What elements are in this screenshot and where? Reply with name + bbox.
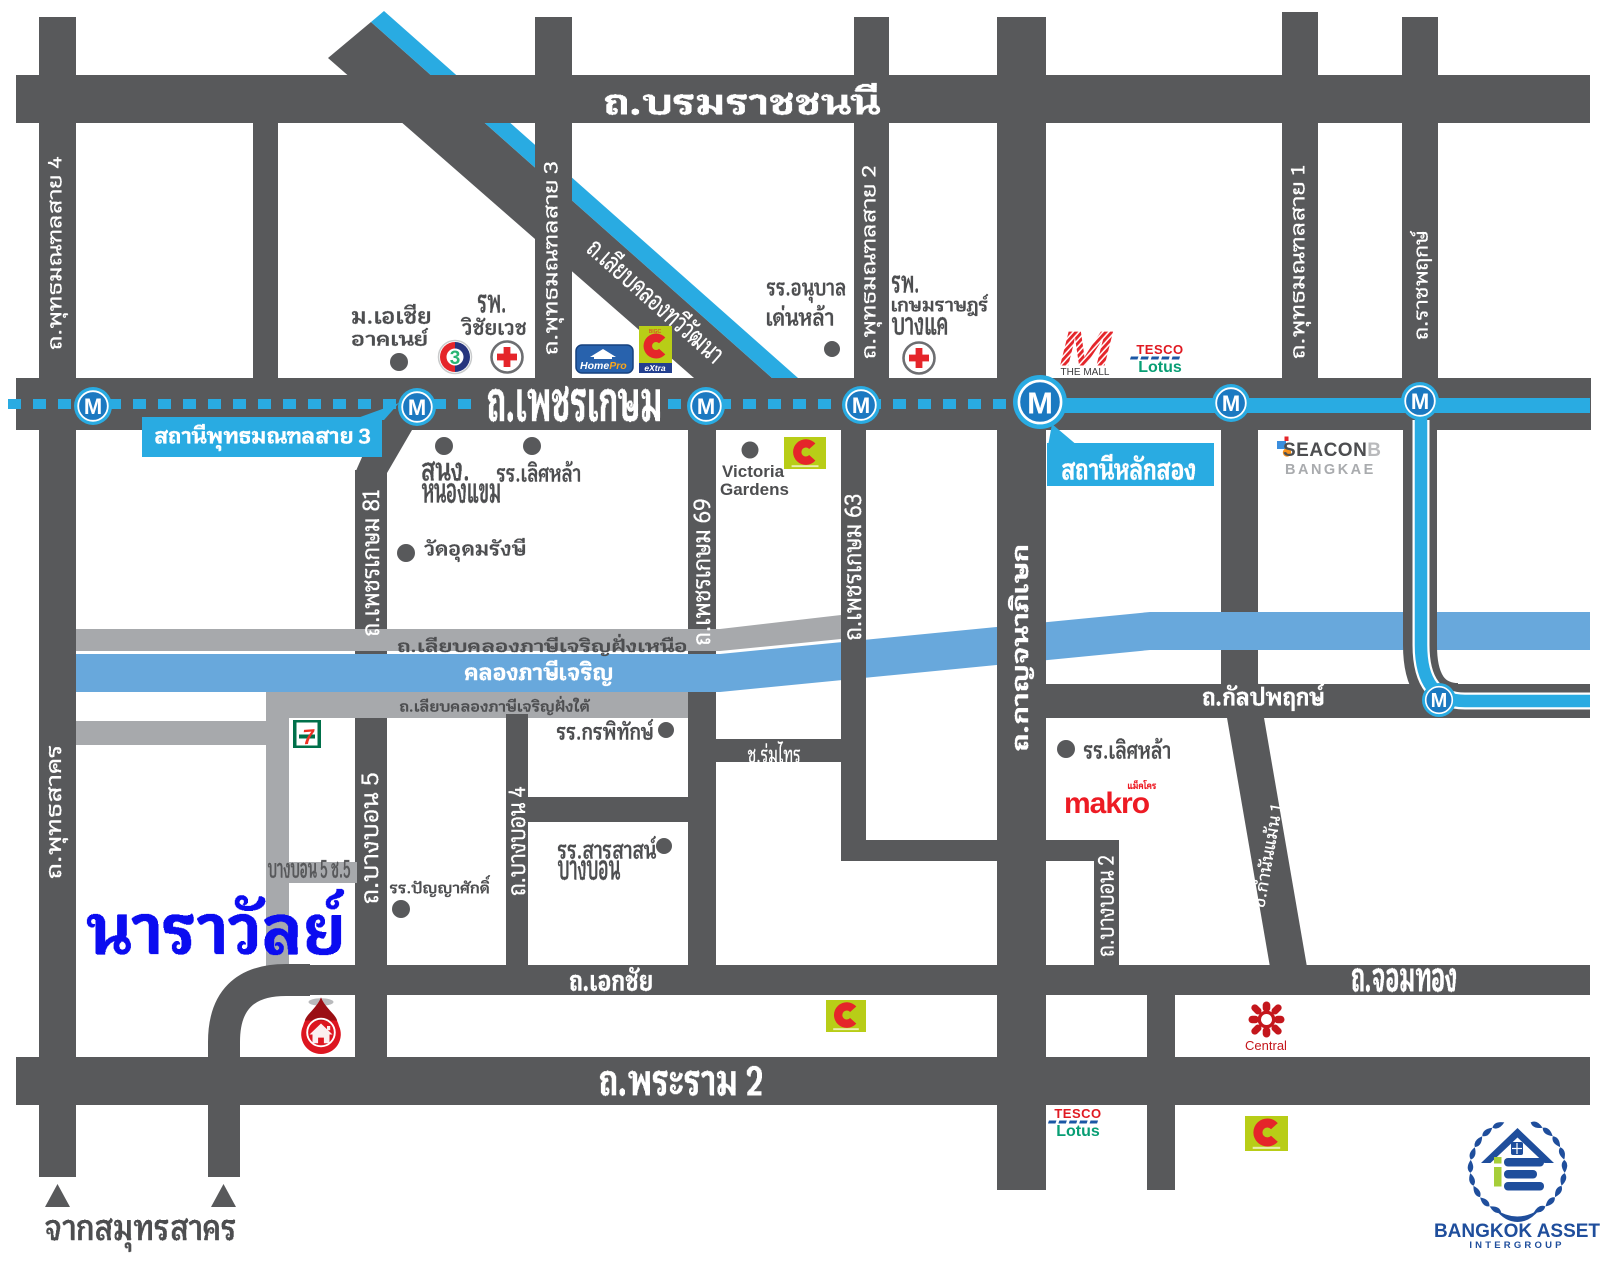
svg-text:Lotus: Lotus xyxy=(1056,1123,1100,1140)
svg-text:TESCO: TESCO xyxy=(1136,342,1183,357)
svg-text:BANGKAE: BANGKAE xyxy=(1285,462,1376,478)
svg-text:eXtra: eXtra xyxy=(644,363,666,373)
svg-text:makro: makro xyxy=(1064,787,1150,820)
svg-text:M: M xyxy=(1411,389,1429,414)
svg-text:Lotus: Lotus xyxy=(1138,359,1182,376)
svg-text:M: M xyxy=(852,393,870,418)
svg-text:SEACONB: SEACONB xyxy=(1283,440,1382,461)
svg-text:Gardens: Gardens xyxy=(720,480,789,499)
svg-text:Central: Central xyxy=(1245,1038,1287,1053)
svg-text:M: M xyxy=(84,394,102,419)
svg-text:M: M xyxy=(1431,690,1448,712)
svg-text:M: M xyxy=(697,394,715,419)
svg-text:HomePro: HomePro xyxy=(580,360,627,372)
svg-text:3: 3 xyxy=(450,348,461,369)
svg-text:BANGKOK ASSET: BANGKOK ASSET xyxy=(1434,1221,1600,1242)
svg-text:THE MALL: THE MALL xyxy=(1061,367,1110,378)
svg-text:M: M xyxy=(408,395,426,420)
svg-text:TESCO: TESCO xyxy=(1054,1106,1101,1121)
svg-text:M: M xyxy=(1222,391,1240,416)
svg-text:M: M xyxy=(1027,385,1053,420)
svg-text:Victoria: Victoria xyxy=(722,462,785,481)
svg-text:INTERGROUP: INTERGROUP xyxy=(1469,1240,1564,1251)
